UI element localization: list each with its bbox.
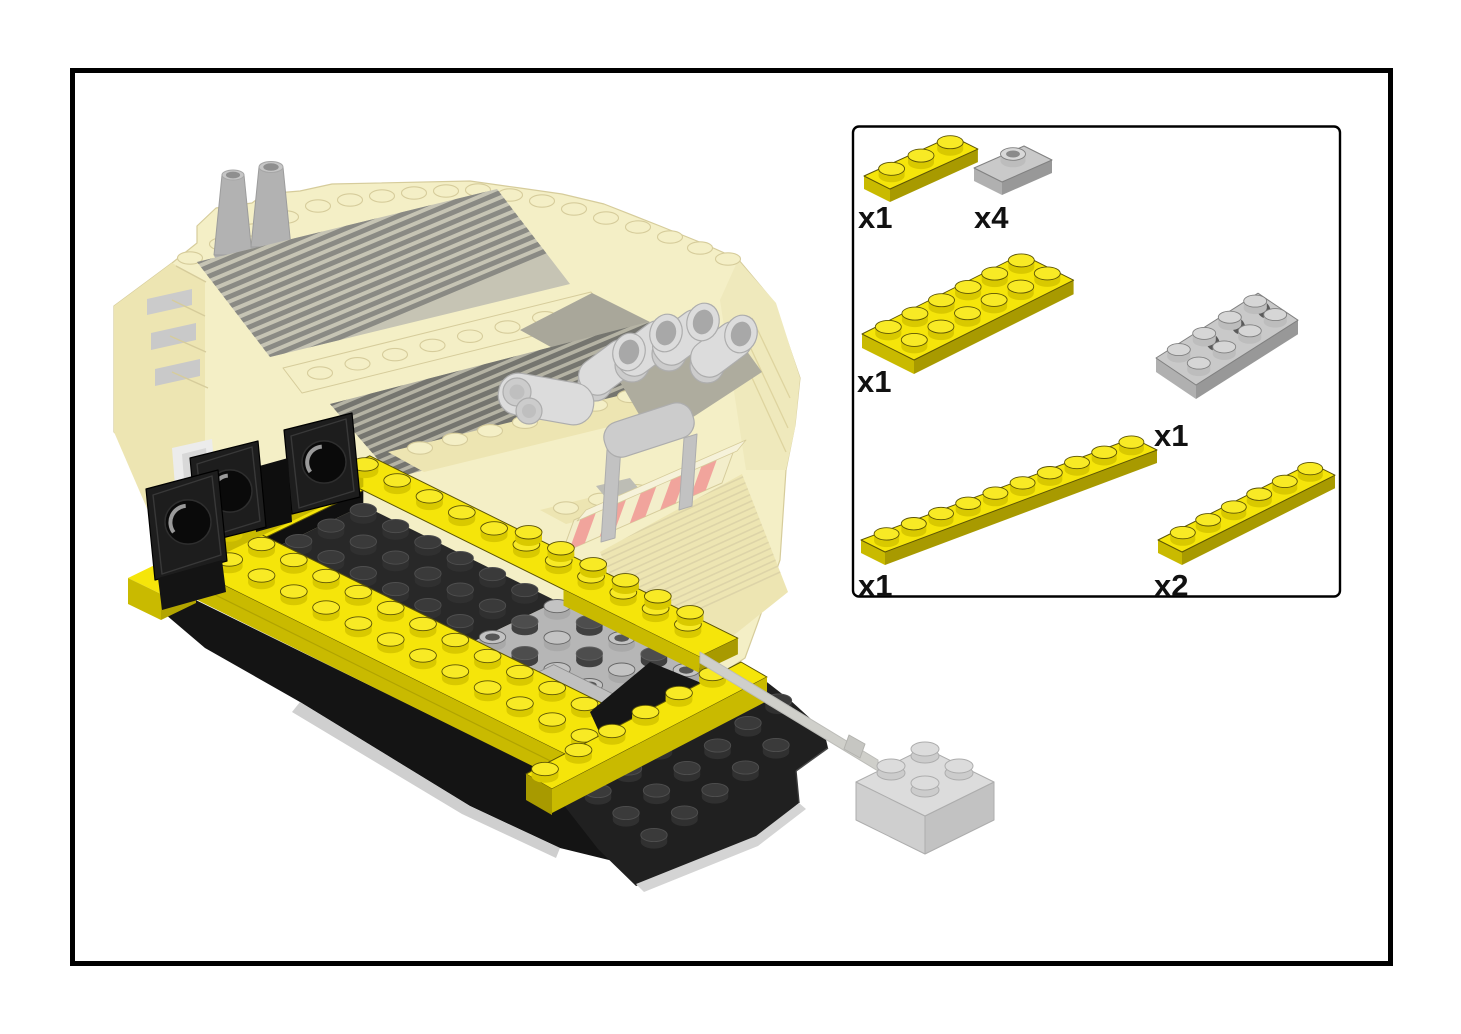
svg-text:x2: x2	[1154, 568, 1188, 603]
svg-text:x1: x1	[1154, 418, 1188, 453]
svg-text:x1: x1	[858, 200, 892, 235]
svg-text:x1: x1	[858, 568, 892, 603]
svg-text:x4: x4	[974, 200, 1009, 235]
svg-text:x1: x1	[857, 364, 891, 399]
